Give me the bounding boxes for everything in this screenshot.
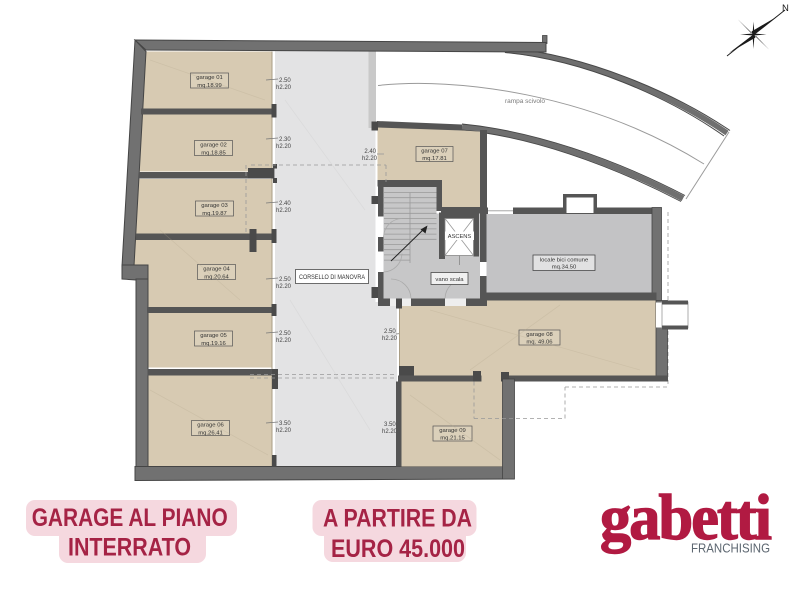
svg-text:vano scala: vano scala [435, 277, 464, 283]
svg-text:mq.26.41: mq.26.41 [198, 431, 223, 437]
svg-text:3.50: 3.50 [279, 421, 291, 427]
svg-text:mq. 49.06: mq. 49.06 [526, 340, 553, 346]
svg-text:h2.20: h2.20 [276, 338, 292, 344]
svg-text:h2.20: h2.20 [276, 428, 292, 434]
svg-text:ASCENS: ASCENS [448, 234, 472, 240]
svg-text:2.50: 2.50 [279, 78, 291, 84]
svg-text:EURO 45.000: EURO 45.000 [331, 536, 465, 563]
svg-text:locale bici comune: locale bici comune [540, 258, 589, 264]
svg-text:rampa scivolo: rampa scivolo [505, 98, 545, 105]
svg-text:garage 02: garage 02 [200, 143, 227, 149]
svg-text:CORSELLO DI MANOVRA: CORSELLO DI MANOVRA [299, 275, 365, 281]
svg-text:2.50: 2.50 [279, 331, 291, 337]
svg-text:h2.20: h2.20 [362, 156, 378, 162]
svg-text:2.30: 2.30 [279, 137, 291, 143]
svg-text:mq.34.50: mq.34.50 [552, 265, 577, 271]
svg-text:mq.19.87: mq.19.87 [202, 211, 227, 217]
svg-text:garage 08: garage 08 [526, 332, 553, 338]
svg-text:garage 07: garage 07 [421, 149, 448, 155]
svg-text:garage 05: garage 05 [200, 333, 227, 339]
svg-text:2.50: 2.50 [384, 329, 396, 335]
svg-text:h2.20: h2.20 [276, 85, 292, 91]
svg-text:garage 03: garage 03 [201, 203, 228, 209]
svg-text:mq.17.81: mq.17.81 [422, 156, 447, 162]
svg-text:h2.20: h2.20 [382, 336, 398, 342]
svg-text:3.50: 3.50 [384, 422, 396, 428]
svg-text:mq.19.16: mq.19.16 [201, 341, 226, 347]
svg-text:INTERRATO: INTERRATO [68, 535, 191, 562]
svg-text:mq.18.85: mq.18.85 [201, 151, 226, 157]
svg-text:2.50: 2.50 [279, 277, 291, 283]
svg-text:N: N [782, 3, 789, 14]
svg-text:garage 09: garage 09 [439, 428, 466, 434]
svg-text:GARAGE AL PIANO: GARAGE AL PIANO [32, 505, 228, 532]
svg-text:2.40: 2.40 [279, 201, 291, 207]
svg-text:mq.21.15: mq.21.15 [440, 436, 465, 442]
svg-text:FRANCHISING: FRANCHISING [691, 541, 770, 556]
svg-text:h2.20: h2.20 [382, 429, 398, 435]
svg-text:h2.20: h2.20 [276, 144, 292, 150]
svg-text:h2.20: h2.20 [276, 208, 292, 214]
svg-text:h2.20: h2.20 [276, 284, 292, 290]
svg-text:A PARTIRE DA: A PARTIRE DA [323, 506, 472, 533]
svg-text:garage 01: garage 01 [196, 75, 223, 81]
svg-text:2.40: 2.40 [364, 149, 376, 155]
